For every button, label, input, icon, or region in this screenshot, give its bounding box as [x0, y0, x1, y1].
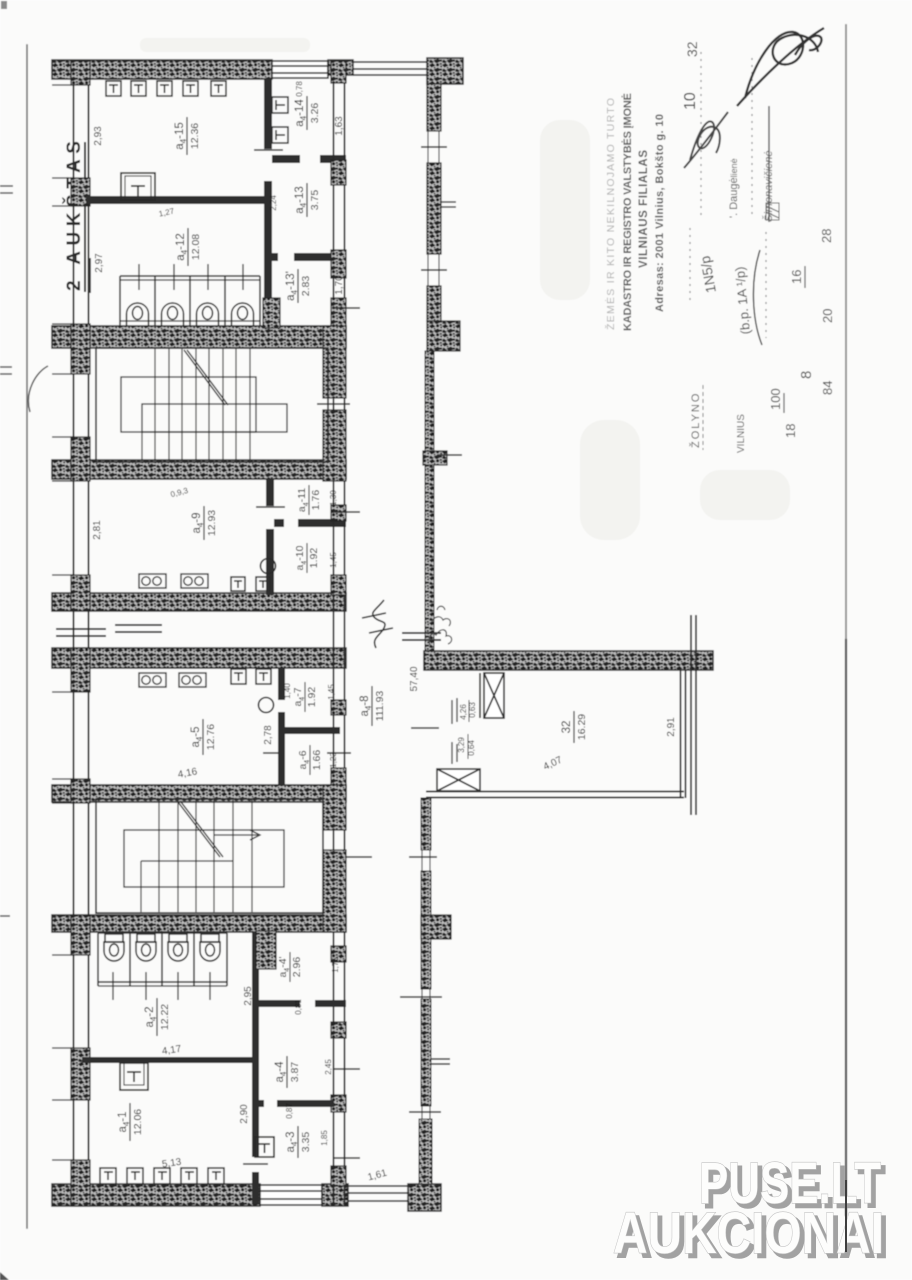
svg-text:10: 10	[682, 92, 699, 110]
svg-text:32: 32	[684, 41, 700, 57]
svg-text:a4-6: a4-6	[297, 750, 311, 769]
svg-text:3.35: 3.35	[300, 1132, 312, 1153]
svg-text:'. Daugėlienė: '. Daugėlienė	[728, 158, 740, 218]
svg-text:a4-4: a4-4	[274, 1061, 288, 1083]
svg-text:2,93: 2,93	[93, 126, 104, 146]
svg-text:ŽEMĖS IR KITO NEKILNOJAMO TURT: ŽEMĖS IR KITO NEKILNOJAMO TURTO	[604, 98, 617, 330]
svg-text:2.96: 2.96	[291, 957, 303, 978]
svg-text:1,75: 1,75	[331, 957, 340, 973]
svg-text:2.83: 2.83	[300, 276, 312, 297]
svg-text:111.93: 111.93	[374, 691, 386, 722]
svg-text:a4-14: a4-14	[294, 99, 308, 127]
svg-text:1.76: 1.76	[310, 490, 322, 511]
svg-text:a4-11: a4-11	[296, 488, 310, 512]
svg-text:3.75: 3.75	[309, 190, 321, 211]
svg-text:100: 100	[768, 388, 783, 410]
svg-text:12.08: 12.08	[190, 234, 202, 260]
svg-text:0,81: 0,81	[294, 999, 303, 1015]
svg-text:32: 32	[561, 721, 573, 734]
svg-text:84: 84	[820, 381, 835, 395]
svg-text:a4-3: a4-3	[285, 1131, 299, 1152]
svg-text:8: 8	[798, 371, 815, 379]
svg-text:1.66: 1.66	[311, 750, 323, 771]
svg-text:12.93: 12.93	[206, 510, 218, 536]
svg-text:1,85: 1,85	[320, 1130, 329, 1146]
svg-text:a4-1: a4-1	[117, 1111, 131, 1132]
svg-text:2,81: 2,81	[92, 520, 103, 540]
svg-text:a4-13: a4-13	[294, 186, 308, 213]
svg-text:a4-10: a4-10	[294, 545, 308, 570]
svg-text:18: 18	[783, 424, 798, 438]
svg-text:a4-8: a4-8	[359, 695, 373, 716]
svg-text:3.26: 3.26	[309, 103, 321, 124]
svg-text:a4-2: a4-2	[144, 1006, 158, 1027]
svg-text:1.92: 1.92	[306, 687, 318, 708]
svg-text:a4-4': a4-4'	[277, 956, 291, 977]
svg-text:1,63: 1,63	[334, 116, 345, 136]
svg-text:a4-7: a4-7	[292, 687, 306, 706]
svg-text:12.06: 12.06	[132, 1109, 144, 1135]
svg-text:1,30: 1,30	[329, 490, 338, 506]
svg-text:12.22: 12.22	[159, 1004, 171, 1030]
svg-text:a4-9: a4-9	[191, 512, 205, 533]
svg-text:2,97: 2,97	[94, 253, 105, 273]
svg-text:a4-13': a4-13'	[285, 271, 299, 301]
svg-text:a4-12: a4-12	[175, 233, 189, 260]
svg-text:16.29: 16.29	[576, 714, 588, 740]
svg-text:2,45: 2,45	[324, 1059, 333, 1075]
svg-text:12.36: 12.36	[189, 123, 201, 149]
svg-text:KADASTRO IR REGISTRO VALSTYBĖS: KADASTRO IR REGISTRO VALSTYBĖS ĮMONĖ	[621, 93, 634, 331]
svg-text:Adresas: 2001 Vilnius, Bokšto: Adresas: 2001 Vilnius, Bokšto g. 10	[654, 114, 666, 312]
svg-text:VILNIUS: VILNIUS	[736, 414, 747, 453]
svg-text:57,40: 57,40	[409, 666, 420, 691]
svg-text:1,45: 1,45	[327, 684, 336, 700]
svg-text:1,45: 1,45	[329, 552, 338, 568]
svg-text:2,24: 2,24	[269, 195, 278, 211]
svg-text:AUKCIONAI: AUKCIONAI	[613, 1201, 884, 1266]
svg-text:2,90: 2,90	[239, 1104, 250, 1124]
svg-text:4,26: 4,26	[459, 704, 468, 720]
svg-text:VILNIAUS FILIALAS: VILNIAUS FILIALAS	[638, 150, 650, 268]
svg-text:16: 16	[789, 270, 804, 284]
svg-text:3.87: 3.87	[289, 1062, 301, 1083]
svg-text:1.92: 1.92	[308, 548, 320, 569]
svg-text:0,87: 0,87	[285, 1103, 294, 1119]
svg-text:28: 28	[819, 229, 834, 243]
svg-text:1,70: 1,70	[334, 275, 345, 295]
svg-text:1,40: 1,40	[283, 683, 292, 699]
svg-text:3,29: 3,29	[457, 737, 466, 753]
svg-text:0,78: 0,78	[295, 81, 304, 97]
svg-text:2,78: 2,78	[263, 725, 274, 745]
svg-text:2,91: 2,91	[666, 717, 677, 737]
svg-text:2,95: 2,95	[243, 986, 254, 1006]
svg-text:a4-15: a4-15	[174, 122, 188, 149]
svg-text:20: 20	[820, 309, 835, 323]
svg-text:12.76: 12.76	[205, 724, 217, 750]
svg-text:ŽOLYNO: ŽOLYNO	[689, 392, 702, 448]
svg-text:1,23: 1,23	[329, 752, 338, 768]
svg-text:a4-5: a4-5	[190, 726, 204, 747]
